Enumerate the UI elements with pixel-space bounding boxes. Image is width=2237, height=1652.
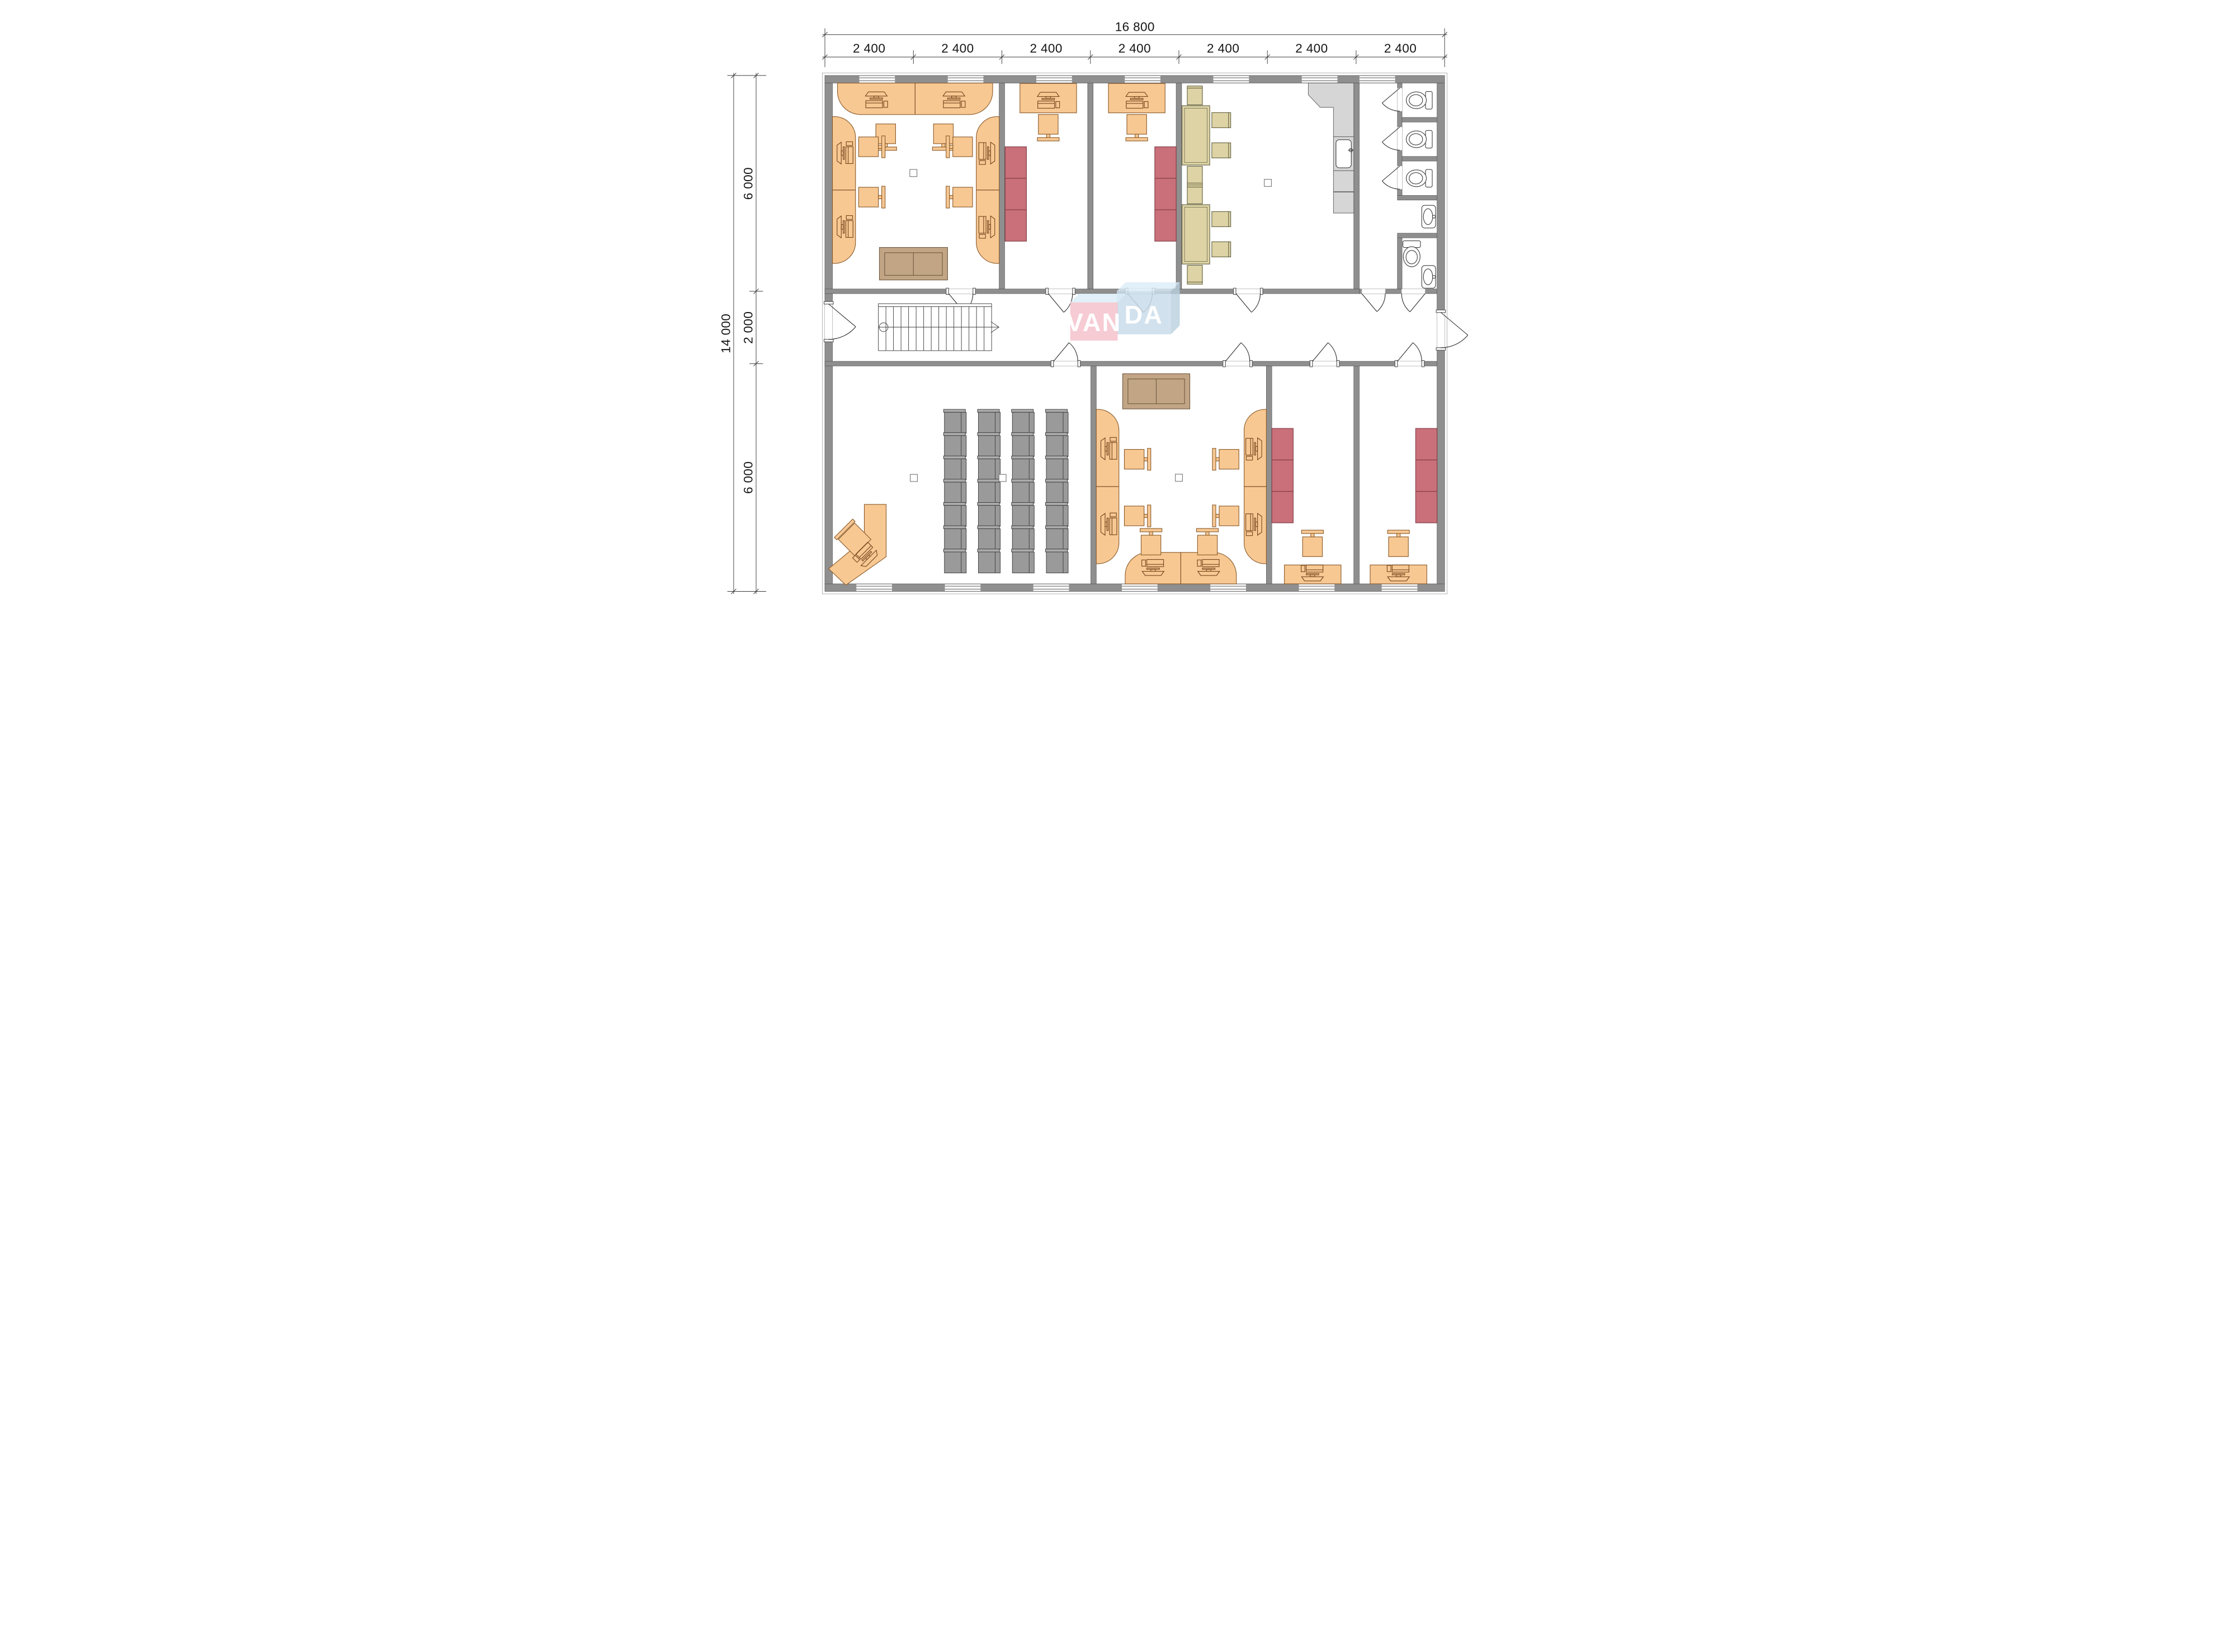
office-chair — [1125, 505, 1151, 527]
window — [945, 584, 981, 591]
bay-width-label: 2 400 — [1295, 41, 1328, 55]
room-private-office-3 — [1272, 428, 1341, 584]
window — [948, 76, 984, 83]
dining-chair — [1187, 185, 1202, 204]
office-chair — [1140, 528, 1162, 555]
office-chair — [946, 186, 973, 208]
window — [1299, 584, 1335, 591]
wash-basin — [1422, 266, 1436, 289]
corridor-staircase — [879, 304, 999, 351]
wash-basin — [1422, 205, 1436, 228]
bay-width-label: 2 400 — [1118, 41, 1151, 55]
kitchen-cabinet — [1333, 171, 1353, 192]
dining-table-group — [1182, 86, 1231, 185]
dining-chair — [1212, 143, 1231, 158]
door — [1401, 289, 1425, 312]
toilet — [1407, 169, 1433, 187]
height-segment-label: 6 000 — [742, 167, 756, 200]
column — [1176, 474, 1183, 482]
office-chair — [1125, 449, 1151, 470]
dining-chair — [1212, 211, 1231, 226]
room-training-room — [829, 409, 1068, 585]
window — [1210, 584, 1246, 591]
bay-width-label: 2 400 — [1207, 41, 1239, 55]
office-chair — [1197, 528, 1219, 555]
door — [1223, 343, 1253, 367]
toilet — [1407, 130, 1433, 148]
room-open-office-top-left — [833, 83, 999, 280]
room-private-office-4 — [1370, 428, 1437, 584]
dining-chair — [1187, 265, 1202, 284]
kitchen-sink — [1336, 140, 1351, 168]
instructor-desk — [829, 504, 886, 585]
door — [1234, 288, 1263, 312]
entrance-door — [1436, 310, 1468, 350]
bay-width-label: 2 400 — [853, 41, 885, 55]
bay-width-label: 2 400 — [1030, 41, 1063, 55]
red-cabinet — [1415, 428, 1437, 523]
floor-plan-page: 16 800 2 400 2 400 2 400 2 400 2 400 2 4… — [699, 0, 1538, 620]
window — [1360, 76, 1395, 83]
stall-door — [1382, 88, 1402, 190]
bay-width-label: 2 400 — [941, 41, 974, 55]
logo-back-box: DA — [1117, 282, 1180, 334]
office-chair — [1387, 530, 1409, 556]
office-chair — [858, 186, 885, 208]
dining-chair — [1212, 112, 1231, 128]
office-chair — [1037, 115, 1059, 141]
dining-chair — [1187, 166, 1202, 185]
window — [1302, 76, 1338, 83]
column — [999, 474, 1006, 482]
floor-plan-drawing: 16 800 2 400 2 400 2 400 2 400 2 400 2 4… — [699, 0, 1538, 620]
toilet — [1403, 241, 1421, 267]
staircase — [879, 304, 999, 351]
office-chair — [1212, 505, 1239, 527]
window — [1125, 76, 1160, 83]
room-open-office-bottom — [1096, 374, 1266, 584]
bay-width-label: 2 400 — [1384, 41, 1417, 55]
office-chair — [1212, 449, 1239, 470]
logo-front-text: VAN — [1066, 308, 1121, 337]
height-segment-label: 2 000 — [742, 311, 756, 344]
door — [1395, 343, 1424, 367]
total-height-label: 14 000 — [719, 314, 733, 353]
room-private-office-1 — [1005, 83, 1077, 241]
logo-back-text: DA — [1125, 300, 1164, 329]
window — [856, 584, 892, 591]
window — [1036, 76, 1072, 83]
door — [1051, 343, 1080, 367]
dining-table-group — [1182, 185, 1231, 284]
room-break-room — [1182, 83, 1354, 285]
office-chair — [1126, 115, 1148, 141]
window — [860, 76, 895, 83]
red-cabinet — [1155, 147, 1176, 242]
kitchen-cabinet — [1333, 192, 1353, 214]
training-chair-grid — [943, 409, 1068, 573]
total-width-label: 16 800 — [1115, 20, 1155, 34]
height-segment-label: 6 000 — [742, 461, 756, 494]
sofa — [880, 248, 948, 280]
column — [1264, 180, 1272, 187]
window — [1214, 76, 1249, 83]
office-chair — [1301, 530, 1323, 556]
column — [910, 474, 918, 482]
dining-chair — [1187, 86, 1202, 105]
entrance-door — [824, 301, 856, 342]
red-cabinet — [1272, 428, 1293, 523]
room-private-office-2 — [1108, 83, 1176, 241]
window — [1382, 584, 1418, 591]
window — [1033, 584, 1069, 591]
door — [1310, 343, 1339, 367]
column — [910, 169, 917, 177]
window — [1122, 584, 1158, 591]
sofa — [1123, 374, 1190, 409]
door — [1362, 289, 1385, 312]
kitchen-counter — [1308, 83, 1353, 214]
dining-chair — [1212, 242, 1231, 257]
toilet — [1407, 92, 1433, 110]
red-cabinet — [1005, 147, 1026, 242]
logo-front-box: VAN — [1066, 294, 1126, 341]
